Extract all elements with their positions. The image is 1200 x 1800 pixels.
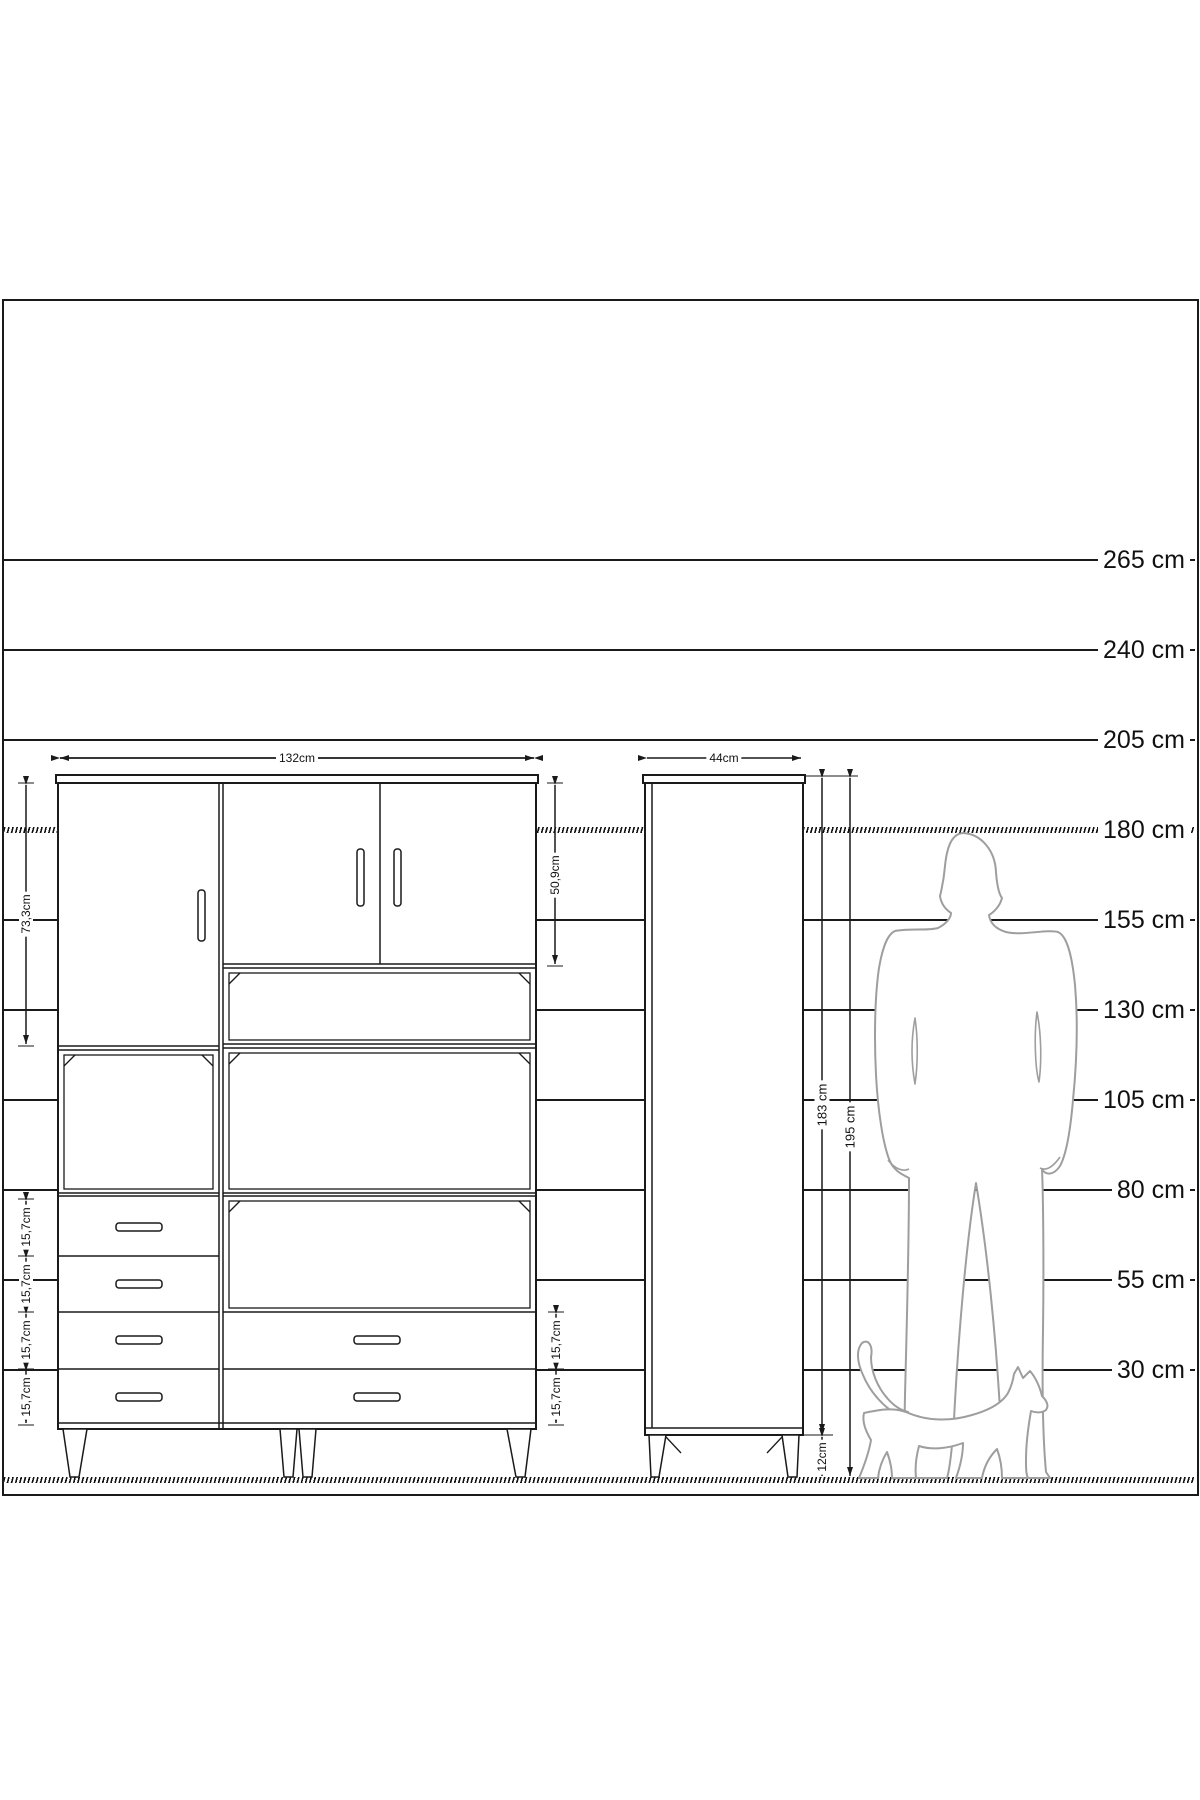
- wardrobe-left-door-height-label: 73,3cm: [19, 891, 33, 936]
- drawer-handle: [116, 1223, 162, 1231]
- drawer-height-label: 15,7cm: [549, 1374, 563, 1419]
- scale-label-265: 265 cm: [1098, 543, 1190, 577]
- man-silhouette: [875, 833, 1077, 1478]
- scale-label-80: 80 cm: [1112, 1173, 1190, 1207]
- drawer-handle: [354, 1336, 400, 1344]
- left-door-handle: [198, 890, 205, 941]
- drawer-height-label: 15,7cm: [19, 1317, 33, 1362]
- scale-label-240: 240 cm: [1098, 633, 1190, 667]
- scale-label-105: 105 cm: [1098, 1083, 1190, 1117]
- drawer-height-label: 15,7cm: [19, 1261, 33, 1306]
- scale-label-30: 30 cm: [1112, 1353, 1190, 1387]
- tall-cabinet-width-label: 44cm: [706, 751, 741, 765]
- tall-cabinet-drawing: [643, 775, 805, 1477]
- wardrobe-drawing: [56, 775, 538, 1477]
- wardrobe-right-doors-height-label: 50,9cm: [548, 852, 562, 897]
- furniture-dimension-diagram: 265 cm 240 cm 205 cm 180 cm 155 cm 130 c…: [0, 0, 1200, 1800]
- drawing-layer: [0, 0, 1200, 1800]
- drawer-handle: [116, 1393, 162, 1401]
- drawer-handle: [116, 1336, 162, 1344]
- wardrobe-width-label: 132cm: [276, 751, 318, 765]
- drawer-height-label: 15,7cm: [19, 1374, 33, 1419]
- scale-label-155: 155 cm: [1098, 903, 1190, 937]
- right-door-handle-1: [357, 849, 364, 906]
- scale-label-180: 180 cm: [1098, 813, 1190, 847]
- scale-label-205: 205 cm: [1098, 723, 1190, 757]
- drawer-height-label: 15,7cm: [19, 1204, 33, 1249]
- tall-cabinet-total-height-label: 195 cm: [843, 1103, 858, 1152]
- tall-cabinet-body-height-label: 183 cm: [815, 1081, 830, 1130]
- drawer-handle: [354, 1393, 400, 1401]
- drawer-height-label: 15,7cm: [549, 1317, 563, 1362]
- scale-label-130: 130 cm: [1098, 993, 1190, 1027]
- scale-label-55: 55 cm: [1112, 1263, 1190, 1297]
- tall-cabinet-leg-height-label: 12cm: [815, 1439, 829, 1474]
- drawer-handle: [116, 1280, 162, 1288]
- right-door-handle-2: [394, 849, 401, 906]
